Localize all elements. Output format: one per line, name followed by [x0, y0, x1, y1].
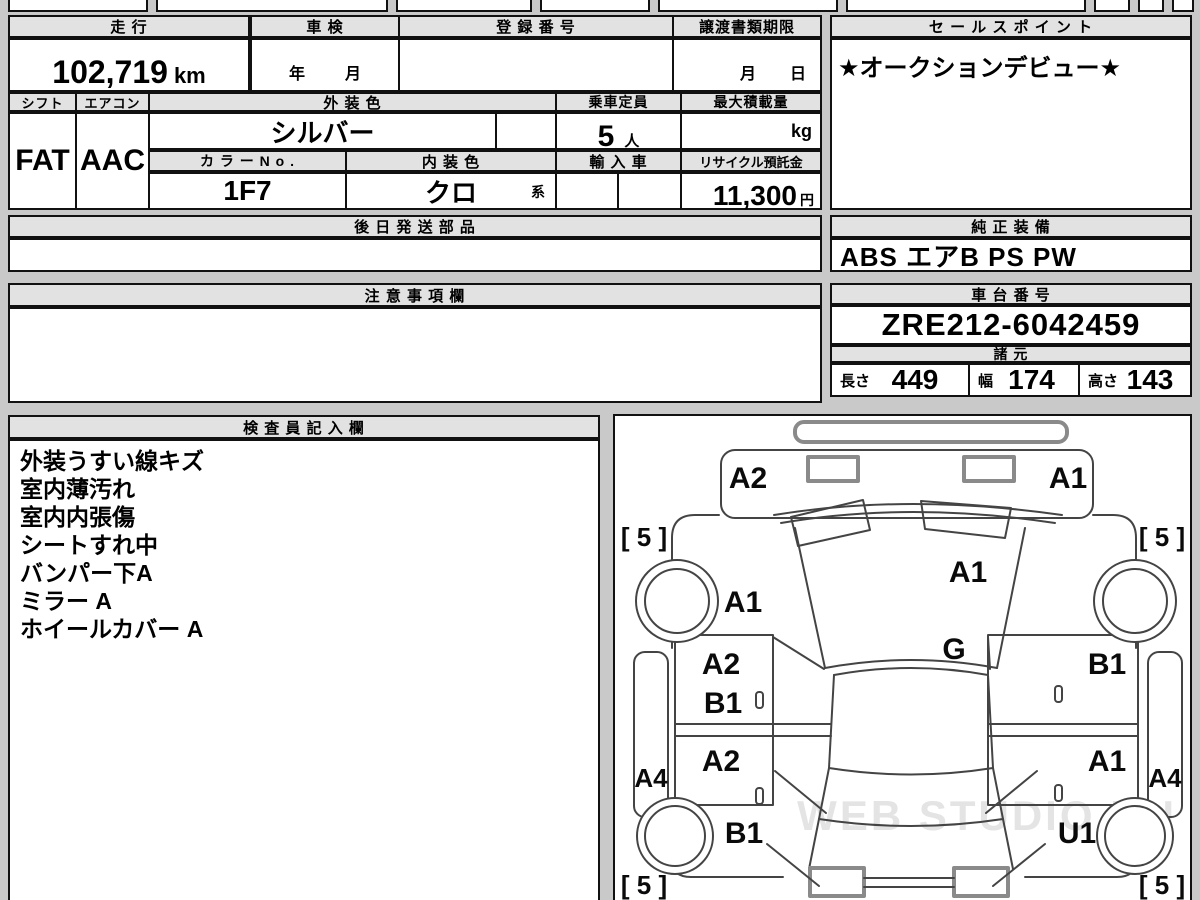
max-load-value: kg [682, 114, 820, 148]
damage-label-door-rear-left: A2 [702, 745, 740, 778]
genuine-equipment-box: 純 正 装 備 ABS エアB PS PW [830, 215, 1192, 272]
damage-label-fender-rear-right: U1 [1058, 817, 1096, 850]
damage-label-windshield: A1 [949, 556, 987, 589]
vehicle-info-table: 走 行 車 検 登 録 番 号 譲渡書類期限 102,719 km 年 月 月 … [8, 15, 822, 210]
wiper-right [921, 501, 1011, 538]
rear-bumper-lines [864, 878, 954, 887]
damage-label-door-front-right: B1 [1088, 648, 1126, 681]
damage-diagram-box: WEB STUDIO RU [613, 414, 1192, 900]
import-car-header: 輸 入 車 [557, 152, 680, 170]
capacity-value: 5 人 [557, 114, 680, 148]
top-row-cell [1172, 0, 1194, 12]
capacity-unit: 人 [624, 130, 639, 151]
door-divider-left [675, 724, 831, 736]
damage-label-door-front-left-upper: A2 [702, 648, 740, 681]
damage-label-door-rear-right: A1 [1088, 745, 1126, 778]
shaken-year-label: 年 [289, 60, 305, 84]
interior-color-name: クロ [425, 173, 477, 210]
registration-value [400, 40, 672, 90]
front-top-strip [795, 422, 1067, 442]
chassis-header: 車 台 番 号 [832, 285, 1190, 303]
import-car-cell-2 [619, 174, 680, 208]
interior-color-suffix: 系 [531, 182, 545, 202]
notes-content [10, 309, 820, 401]
damage-label-front-bumper-right: A1 [1049, 462, 1087, 495]
wheel-rear-left-inner [645, 806, 705, 866]
inspector-note-line: 外装うすい線キズ [20, 447, 204, 475]
a-pillar-left [773, 637, 824, 669]
spec-width-value: 174 [993, 364, 1070, 396]
spec-width-cell: 幅 174 [970, 365, 1078, 395]
cowl-line [774, 504, 1062, 515]
transfer-deadline-value: 月 日 [674, 40, 820, 90]
shaken-month-label: 月 [345, 60, 361, 84]
sales-point-content: ★オークションデビュー★ [832, 40, 1190, 208]
windshield-base-curve [825, 660, 997, 668]
top-row-cell [156, 0, 388, 12]
tread-label-rear-right: [ 5 ] [1139, 870, 1185, 900]
damage-label-door-front-left-lower: B1 [704, 687, 742, 720]
windshield-right-edge [997, 528, 1025, 668]
transfer-deadline-header: 譲渡書類期限 [674, 17, 820, 36]
sales-point-header: セ ー ル ス ポ イ ン ト [832, 17, 1190, 36]
inspector-note-line: シートすれ中 [20, 531, 158, 559]
damage-label-sill-left: A4 [634, 763, 668, 793]
top-row-cell [396, 0, 532, 12]
interior-color-header: 内 装 色 [347, 152, 555, 170]
tail-light-left [810, 868, 864, 896]
wheel-rear-right-inner [1105, 806, 1165, 866]
transfer-month-label: 月 [740, 60, 756, 84]
sales-point-text: ★オークションデビュー★ [832, 40, 1127, 91]
door-handle-front-right [1055, 686, 1062, 702]
door-divider-right [988, 724, 1138, 736]
spec-height-cell: 高さ 143 [1080, 365, 1190, 395]
inspector-notes-box: 検 査 員 記 入 欄 外装うすい線キズ 室内薄汚れ 室内内張傷 シートすれ中 … [8, 415, 600, 900]
damage-label-fender-front-left: A1 [724, 586, 762, 619]
spec-length-label: 長さ [840, 370, 870, 391]
max-load-header: 最大積載量 [682, 94, 820, 110]
damage-label-glass: G [942, 633, 965, 666]
shift-value: FAT [10, 114, 75, 208]
shaken-header: 車 検 [252, 17, 398, 36]
front-plate-right [964, 457, 1014, 481]
door-handle-front-left [756, 692, 763, 708]
genuine-equipment-content: ABS エアB PS PW [832, 240, 1190, 270]
tread-label-rear-left: [ 5 ] [621, 870, 667, 900]
tread-label-front-right: [ 5 ] [1139, 522, 1185, 552]
front-plate-left [808, 457, 858, 481]
capacity-number: 5 [598, 120, 615, 154]
tail-light-right [954, 868, 1008, 896]
damage-label-fender-rear-left: B1 [725, 817, 763, 850]
chassis-specs-box: 車 台 番 号 ZRE212-6042459 諸 元 長さ 449 幅 174 … [830, 283, 1192, 397]
spec-length-cell: 長さ 449 [832, 365, 968, 395]
inspector-note-line: 室内薄汚れ [20, 475, 135, 503]
mileage-unit: km [174, 63, 206, 89]
color-no-value: 1F7 [150, 174, 345, 208]
mileage-number: 102,719 [52, 54, 168, 91]
spec-height-label: 高さ [1088, 370, 1118, 391]
damage-label-sill-right: A4 [1148, 763, 1182, 793]
roof-front-curve [834, 668, 988, 675]
exterior-color-header: 外 装 色 [150, 94, 555, 110]
recycle-deposit-number: 11,300 [713, 180, 797, 212]
sales-point-box: セ ー ル ス ポ イ ン ト ★オークションデビュー★ [830, 15, 1192, 210]
later-parts-box: 後 日 発 送 部 品 [8, 215, 822, 272]
specs-header: 諸 元 [832, 347, 1190, 361]
spec-length-value: 449 [870, 364, 960, 396]
spec-width-label: 幅 [978, 370, 993, 391]
recycle-deposit-value: 11,300 円 [682, 174, 820, 208]
inspector-notes-content: 外装うすい線キズ 室内薄汚れ 室内内張傷 シートすれ中 バンパー下A ミラー A… [10, 441, 598, 900]
damage-label-front-bumper-left: A2 [729, 462, 767, 495]
notes-header: 注 意 事 項 欄 [10, 285, 820, 305]
wheel-front-left-inner [645, 569, 709, 633]
inspector-note-line: ミラー A [20, 587, 112, 615]
recycle-deposit-header: リサイクル預託金 [682, 152, 820, 170]
top-row-cell [846, 0, 1086, 12]
genuine-equipment-header: 純 正 装 備 [832, 217, 1190, 236]
shaken-value: 年 月 [252, 40, 398, 90]
top-row-cell [1138, 0, 1164, 12]
aircon-value: AAC [77, 114, 148, 208]
inspector-note-line: 室内内張傷 [20, 503, 135, 531]
roof-left-edge [829, 675, 834, 768]
notes-box: 注 意 事 項 欄 [8, 283, 822, 403]
max-load-unit: kg [791, 121, 812, 142]
transfer-day-label: 日 [790, 60, 806, 84]
inspector-note-line: ホイールカバー A [20, 615, 203, 643]
exterior-color-extra-cell [497, 114, 555, 148]
spec-height-value: 143 [1118, 364, 1182, 396]
top-row-cell [658, 0, 838, 12]
import-car-cell-1 [557, 174, 617, 208]
recycle-deposit-unit: 円 [800, 190, 814, 210]
car-top-view-diagram: WEB STUDIO RU [615, 416, 1190, 900]
mileage-header: 走 行 [10, 17, 248, 36]
shift-header: シフト [10, 94, 75, 110]
top-row-cell [8, 0, 148, 12]
wheel-front-right-inner [1103, 569, 1167, 633]
door-handle-rear-left [756, 788, 763, 804]
front-bumper [721, 450, 1093, 518]
top-row-cell [1094, 0, 1130, 12]
tread-label-front-left: [ 5 ] [621, 522, 667, 552]
color-no-header: カ ラ ー N o . [150, 152, 345, 170]
aircon-header: エアコン [77, 94, 148, 110]
windshield-left-edge [795, 528, 825, 668]
later-parts-header: 後 日 発 送 部 品 [10, 217, 820, 236]
inspector-notes-header: 検 査 員 記 入 欄 [10, 417, 598, 437]
registration-header: 登 録 番 号 [400, 17, 672, 36]
exterior-color-value: シルバー [150, 114, 495, 148]
inspector-note-line: バンパー下A [20, 559, 153, 587]
wiper-left [791, 500, 870, 546]
chassis-value: ZRE212-6042459 [832, 307, 1190, 343]
roof-rear-curve [829, 768, 993, 775]
later-parts-content [10, 240, 820, 270]
top-row-cell [540, 0, 650, 12]
auction-sheet: 走 行 車 検 登 録 番 号 譲渡書類期限 102,719 km 年 月 月 … [0, 0, 1200, 900]
capacity-header: 乗車定員 [557, 94, 680, 110]
interior-color-value: クロ 系 [347, 174, 555, 208]
mileage-value: 102,719 km [10, 40, 248, 90]
